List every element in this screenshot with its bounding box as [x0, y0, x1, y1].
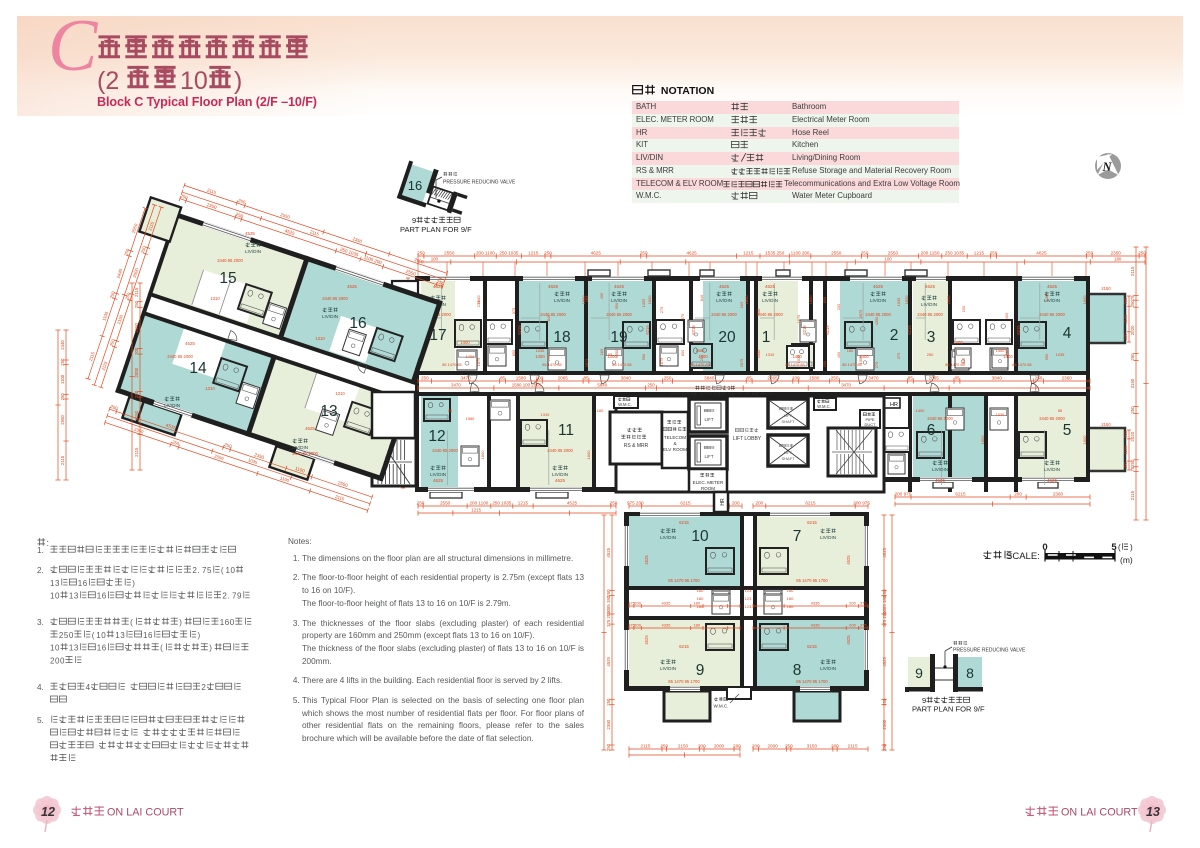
svg-text:3: 3 [927, 329, 936, 346]
svg-text:375: 375 [896, 353, 901, 360]
svg-text:): ) [209, 644, 212, 653]
svg-text:100: 100 [536, 375, 544, 380]
svg-text:3840: 3840 [621, 375, 632, 380]
svg-text:W.M.C.: W.M.C. [618, 402, 632, 407]
svg-text:LIV/DIN: LIV/DIN [716, 298, 732, 303]
svg-text:4525: 4525 [846, 635, 851, 645]
svg-text:2440 85 2000: 2440 85 2000 [322, 296, 348, 301]
svg-text:1310: 1310 [205, 386, 215, 391]
svg-text:8: 8 [793, 662, 802, 679]
svg-text:5.: 5. [37, 716, 44, 725]
svg-text:250: 250 [1130, 353, 1135, 361]
svg-text:250: 250 [882, 743, 887, 751]
svg-text:150: 150 [822, 360, 827, 367]
svg-text:6: 6 [102, 644, 107, 653]
svg-text:4350: 4350 [614, 349, 619, 358]
svg-text:1305: 1305 [858, 356, 863, 365]
svg-text:4625: 4625 [873, 284, 884, 289]
svg-text:6: 6 [927, 422, 936, 439]
svg-text:2115: 2115 [206, 187, 217, 195]
svg-text:4525: 4525 [606, 657, 611, 667]
svg-text:250: 250 [927, 352, 934, 357]
svg-text:4625: 4625 [935, 478, 946, 483]
svg-text:200: 200 [634, 622, 641, 627]
svg-text:2440 85 2000: 2440 85 2000 [1039, 416, 1065, 421]
svg-text:3: 3 [74, 644, 79, 653]
svg-text:123: 123 [745, 596, 752, 601]
svg-text:1035: 1035 [536, 348, 545, 353]
svg-text:0: 0 [55, 592, 60, 601]
svg-text:1215: 1215 [528, 250, 539, 255]
svg-text:2440 85 2000: 2440 85 2000 [1039, 312, 1065, 317]
svg-text:4335: 4335 [811, 622, 821, 627]
svg-text:200 975: 200 975 [853, 500, 870, 505]
svg-text:4525: 4525 [882, 657, 887, 667]
svg-text:2000: 2000 [414, 257, 425, 265]
svg-text:1305: 1305 [1044, 293, 1049, 302]
svg-text:850: 850 [511, 349, 516, 356]
svg-text:250: 250 [610, 500, 618, 505]
svg-text:200: 200 [634, 600, 641, 605]
svg-text:PRESSURE REDUCING VALVE: PRESSURE REDUCING VALVE [953, 648, 1026, 654]
svg-text:2440 85 2000: 2440 85 2000 [927, 416, 953, 421]
svg-text:.: . [227, 592, 229, 601]
svg-text:LIV/DIN: LIV/DIN [1044, 467, 1060, 472]
svg-text:375: 375 [860, 600, 867, 605]
svg-text:RS & MRR: RS & MRR [624, 443, 649, 449]
svg-text:3470: 3470 [460, 375, 471, 380]
svg-text:85: 85 [583, 375, 589, 380]
svg-text:165: 165 [739, 302, 744, 309]
svg-text:100: 100 [1123, 461, 1128, 468]
svg-text:165: 165 [584, 296, 589, 303]
svg-text:375: 375 [680, 314, 685, 321]
svg-text:250 1035: 250 1035 [492, 500, 512, 505]
svg-text:LIV/DIN: LIV/DIN [322, 314, 338, 319]
svg-text:1800: 1800 [647, 295, 652, 305]
svg-text:6215: 6215 [691, 325, 696, 335]
svg-text:200 1100: 200 1100 [469, 500, 488, 505]
svg-text:250: 250 [606, 743, 611, 751]
svg-text:6215: 6215 [955, 491, 966, 496]
svg-text:6215: 6215 [825, 325, 830, 335]
svg-text:2875: 2875 [739, 359, 744, 368]
svg-text:3470: 3470 [868, 375, 879, 380]
svg-text:375: 375 [511, 308, 516, 315]
svg-text:250: 250 [235, 212, 244, 219]
svg-text:1400: 1400 [460, 340, 470, 345]
svg-text:250: 250 [421, 375, 429, 380]
svg-text:4525: 4525 [644, 635, 649, 645]
svg-text:180: 180 [787, 588, 794, 593]
svg-text:4350: 4350 [874, 316, 879, 325]
svg-text:LIV/DIN: LIV/DIN [611, 298, 627, 303]
svg-text:250: 250 [1035, 375, 1043, 380]
svg-text:200: 200 [698, 743, 706, 748]
svg-text:840: 840 [961, 357, 966, 364]
svg-text:1150: 1150 [1123, 314, 1128, 323]
svg-text:4525: 4525 [567, 500, 578, 505]
svg-text:0: 0 [231, 566, 236, 575]
svg-text:400: 400 [1004, 312, 1009, 319]
svg-text:2440 85 2000: 2440 85 2000 [217, 258, 243, 263]
svg-text:5: 5 [207, 566, 212, 575]
svg-text:250: 250 [640, 250, 648, 255]
svg-text:2550: 2550 [134, 323, 139, 333]
svg-text:2115: 2115 [1130, 266, 1135, 276]
svg-text:1580: 1580 [466, 416, 475, 421]
svg-text:200 1150: 200 1150 [921, 250, 940, 255]
svg-text:2875: 2875 [858, 310, 863, 319]
svg-text:85: 85 [448, 408, 452, 413]
svg-text:1035: 1035 [896, 298, 901, 307]
svg-text:180: 180 [847, 348, 854, 353]
svg-text:4625: 4625 [765, 284, 776, 289]
svg-text:250: 250 [882, 698, 887, 706]
svg-text:4625: 4625 [1047, 478, 1058, 483]
svg-text:2020: 2020 [1130, 325, 1135, 335]
svg-text:550: 550 [641, 353, 646, 360]
svg-text:16: 16 [408, 178, 422, 193]
svg-text:100: 100 [792, 375, 800, 380]
svg-text:1400: 1400 [535, 354, 545, 359]
svg-text:85 1470 85: 85 1470 85 [442, 362, 461, 367]
svg-text:1800: 1800 [1082, 435, 1087, 445]
svg-text:123: 123 [745, 588, 752, 593]
svg-text:LIV/DIN: LIV/DIN [932, 467, 948, 472]
svg-text:180: 180 [1114, 256, 1122, 261]
svg-text:85: 85 [1058, 408, 1062, 413]
svg-text:85 1470 85: 85 1470 85 [612, 362, 631, 367]
svg-text:(m): (m) [1120, 555, 1133, 565]
svg-text:1310: 1310 [335, 391, 345, 396]
svg-text:2350: 2350 [352, 236, 363, 244]
svg-text:4625: 4625 [591, 250, 602, 255]
svg-text:6215: 6215 [679, 644, 689, 649]
svg-text:2440 85 2000: 2440 85 2000 [711, 312, 737, 317]
svg-text:250: 250 [861, 250, 869, 255]
svg-text:LIFT: LIFT [784, 413, 793, 418]
svg-text:2440 85 2000: 2440 85 2000 [167, 354, 193, 359]
svg-text:LIV/DIN: LIV/DIN [552, 472, 568, 477]
svg-text:5840: 5840 [597, 382, 607, 387]
svg-text:900: 900 [1123, 297, 1128, 304]
svg-text:1085 180: 1085 180 [882, 595, 887, 614]
svg-text:1400: 1400 [996, 348, 1005, 353]
svg-text:85 1470 85 1700: 85 1470 85 1700 [668, 578, 700, 583]
svg-text:DUCT: DUCT [864, 422, 876, 427]
svg-text:0: 0 [60, 656, 65, 665]
svg-text:165: 165 [1004, 349, 1009, 356]
svg-text:3150: 3150 [1130, 378, 1135, 388]
svg-text:4335: 4335 [662, 622, 672, 627]
svg-text:250: 250 [660, 743, 668, 748]
svg-text:4625: 4625 [1047, 284, 1058, 289]
svg-text:1085 180: 1085 180 [606, 595, 611, 614]
svg-text:6215: 6215 [807, 520, 817, 525]
svg-text:15: 15 [219, 270, 236, 287]
svg-text:200: 200 [699, 354, 704, 361]
svg-text:1800: 1800 [586, 450, 591, 460]
svg-text:250: 250 [417, 500, 425, 505]
svg-text:250: 250 [990, 250, 998, 255]
svg-text:200: 200 [756, 500, 764, 505]
svg-text:200: 200 [546, 354, 551, 361]
svg-text:LIV/DIN: LIV/DIN [292, 445, 308, 450]
svg-text:1800: 1800 [480, 450, 485, 460]
svg-text:18: 18 [553, 329, 570, 346]
svg-text:2115: 2115 [134, 287, 139, 297]
svg-text:250: 250 [831, 375, 839, 380]
svg-text:2115: 2115 [641, 743, 651, 748]
svg-text:180: 180 [693, 622, 700, 627]
svg-text:6: 6 [102, 592, 107, 601]
svg-text:0: 0 [1042, 542, 1047, 553]
svg-text:6215: 6215 [679, 520, 689, 525]
svg-text:200: 200 [752, 743, 760, 748]
svg-text:1305: 1305 [641, 299, 646, 308]
svg-text:(: ( [92, 631, 95, 640]
svg-text:6215: 6215 [805, 500, 816, 505]
svg-text:3: 3 [55, 579, 60, 588]
svg-text:2000: 2000 [767, 743, 778, 748]
svg-text:4525: 4525 [606, 547, 611, 557]
svg-text:4625: 4625 [548, 284, 559, 289]
svg-text:75: 75 [1130, 466, 1135, 471]
svg-text:4: 4 [86, 683, 91, 692]
svg-text::: : [46, 538, 49, 549]
svg-text:4: 4 [1063, 325, 1072, 342]
svg-text:LIV/DIN: LIV/DIN [430, 472, 446, 477]
svg-text:2550: 2550 [337, 480, 349, 488]
svg-text:4.: 4. [37, 683, 44, 692]
svg-text:550: 550 [756, 308, 761, 315]
svg-text:2550: 2550 [444, 250, 455, 255]
svg-text:150: 150 [961, 305, 966, 312]
svg-text:2440: 2440 [60, 340, 65, 350]
svg-text:180: 180 [693, 600, 700, 605]
svg-text:2150: 2150 [116, 314, 124, 325]
svg-text:1400: 1400 [466, 354, 475, 359]
svg-text:2440: 2440 [116, 268, 124, 279]
svg-text:275: 275 [874, 362, 879, 369]
svg-text:LIFT LOBBY: LIFT LOBBY [733, 436, 762, 442]
svg-text:W.M.C.: W.M.C. [817, 404, 831, 409]
svg-text:2440 85 2000: 2440 85 2000 [292, 451, 318, 456]
svg-text:2440 85 2000: 2440 85 2000 [917, 312, 943, 317]
svg-text:2065: 2065 [929, 375, 940, 380]
svg-text:4525: 4525 [846, 555, 851, 565]
svg-text:1215: 1215 [518, 500, 529, 505]
svg-text:2365: 2365 [767, 375, 778, 380]
svg-text:250: 250 [1085, 250, 1093, 255]
svg-text:85 1470 85 1700: 85 1470 85 1700 [796, 679, 828, 684]
svg-text:19: 19 [610, 329, 627, 346]
svg-text:2115: 2115 [134, 447, 139, 457]
svg-text:165: 165 [599, 349, 604, 356]
svg-text:LIV/DIN: LIV/DIN [762, 298, 778, 303]
svg-text:): ) [1130, 543, 1133, 552]
svg-text:2000: 2000 [134, 367, 139, 377]
svg-text:2360: 2360 [1062, 375, 1073, 380]
svg-text:250: 250 [223, 442, 232, 449]
svg-text:1535 250: 1535 250 [765, 250, 785, 255]
svg-text:6: 6 [83, 579, 88, 588]
svg-text:1675: 1675 [659, 358, 664, 367]
svg-text:1400: 1400 [916, 408, 925, 413]
svg-text:2115: 2115 [60, 455, 65, 465]
svg-text:2020: 2020 [1130, 431, 1135, 441]
svg-text:1215: 1215 [743, 250, 754, 255]
svg-text:1035: 1035 [996, 412, 1005, 417]
svg-text:250: 250 [60, 358, 65, 366]
svg-text:100: 100 [431, 256, 439, 261]
svg-text:400: 400 [599, 292, 604, 299]
svg-text:85: 85 [908, 375, 914, 380]
svg-text:9: 9 [696, 662, 705, 679]
svg-text:7: 7 [793, 528, 802, 545]
svg-text:LIV/DIN: LIV/DIN [164, 403, 180, 408]
svg-text:6215: 6215 [907, 325, 912, 335]
svg-text:PRESSURE REDUCING VALVE: PRESSURE REDUCING VALVE [443, 180, 516, 186]
svg-text:4525: 4525 [185, 341, 195, 346]
svg-text:6215: 6215 [807, 644, 817, 649]
svg-text:85 1470 85 1700: 85 1470 85 1700 [796, 578, 828, 583]
svg-text:2360: 2360 [606, 719, 611, 729]
svg-text:8: 8 [966, 665, 974, 681]
svg-text:2360: 2360 [882, 719, 887, 729]
svg-text:85 1470 85: 85 1470 85 [785, 362, 804, 367]
svg-text:&: & [673, 441, 676, 446]
svg-text:250: 250 [606, 589, 611, 597]
svg-text:400: 400 [836, 351, 841, 358]
svg-text:2440 85 2000: 2440 85 2000 [865, 312, 891, 317]
svg-text:ELV ROOM: ELV ROOM [663, 447, 687, 452]
svg-text:4625: 4625 [614, 284, 625, 289]
svg-text:6215: 6215 [802, 325, 807, 335]
svg-text:SHAFT: SHAFT [781, 419, 795, 424]
svg-text:4625: 4625 [433, 478, 444, 483]
svg-text:1100: 1100 [60, 374, 65, 384]
svg-text:375 200: 375 200 [606, 611, 611, 627]
svg-text:550: 550 [614, 302, 619, 309]
svg-text:2550: 2550 [888, 250, 899, 255]
svg-text:2000: 2000 [714, 743, 725, 748]
svg-text:200: 200 [1014, 491, 1022, 496]
svg-text:250: 250 [664, 375, 672, 380]
svg-text:1800: 1800 [744, 295, 749, 305]
svg-text:LIFT: LIFT [704, 417, 713, 422]
svg-text:100: 100 [884, 256, 892, 261]
svg-text:1035: 1035 [796, 355, 801, 364]
svg-text:2150: 2150 [134, 410, 139, 420]
svg-text:2440 85 2000: 2440 85 2000 [432, 448, 458, 453]
svg-text:PART PLAN FOR 9/F: PART PLAN FOR 9/F [912, 705, 985, 714]
svg-text:180: 180 [597, 408, 604, 413]
svg-text:250: 250 [647, 382, 655, 387]
svg-text:): ) [179, 618, 182, 627]
svg-text:1310: 1310 [315, 336, 325, 341]
svg-text:180: 180 [787, 596, 794, 601]
svg-text:4350: 4350 [756, 349, 761, 358]
svg-text:5: 5 [1111, 542, 1117, 553]
svg-text:N: N [1101, 160, 1112, 174]
svg-text:1310: 1310 [766, 352, 775, 357]
svg-text:1675: 1675 [796, 315, 801, 324]
svg-text:1.: 1. [37, 546, 44, 555]
svg-text:.: . [197, 566, 199, 575]
svg-text:100: 100 [1123, 333, 1128, 340]
svg-text:2150: 2150 [1101, 286, 1111, 291]
svg-text:85 1470 85: 85 1470 85 [690, 362, 709, 367]
svg-text:840: 840 [699, 294, 704, 301]
svg-text:180: 180 [697, 588, 704, 593]
svg-text:LIV/DIN: LIV/DIN [820, 535, 836, 540]
svg-text:6215: 6215 [517, 325, 522, 335]
svg-text:2.: 2. [37, 566, 44, 575]
svg-text:850: 850 [680, 349, 685, 356]
svg-text:9: 9 [727, 386, 730, 392]
svg-text:3.: 3. [37, 618, 44, 627]
svg-text:3: 3 [74, 592, 79, 601]
svg-text:11: 11 [558, 422, 574, 439]
svg-text:200: 200 [836, 303, 841, 310]
svg-text:3470: 3470 [451, 382, 461, 387]
svg-text:1035: 1035 [1056, 352, 1065, 357]
svg-text:4525: 4525 [644, 555, 649, 565]
svg-text:6215: 6215 [680, 500, 691, 505]
svg-text:250: 250 [179, 193, 188, 200]
svg-text:9: 9 [237, 592, 242, 601]
svg-text:SHAFT: SHAFT [781, 456, 795, 461]
svg-text:4525: 4525 [305, 426, 315, 431]
svg-text:4625: 4625 [925, 284, 936, 289]
svg-text:2: 2 [201, 683, 206, 692]
svg-text:0: 0 [101, 631, 106, 640]
svg-text:PART PLAN FOR 9/F: PART PLAN FOR 9/F [400, 225, 472, 234]
svg-text:2150: 2150 [678, 743, 689, 748]
svg-text:2875: 2875 [584, 359, 589, 368]
svg-text:200: 200 [134, 347, 139, 355]
svg-text:250: 250 [60, 393, 65, 401]
svg-text:1310: 1310 [541, 412, 550, 417]
svg-text:840: 840 [546, 314, 551, 321]
svg-text:1800: 1800 [808, 295, 813, 305]
svg-text:250: 250 [544, 250, 552, 255]
svg-text:250: 250 [1138, 250, 1146, 255]
svg-text:LIFT: LIFT [704, 454, 713, 459]
svg-text:375: 375 [860, 622, 867, 627]
svg-text:4525: 4525 [347, 284, 357, 289]
svg-text:123: 123 [745, 604, 752, 609]
svg-text:3: 3 [120, 631, 125, 640]
svg-text:20: 20 [718, 329, 736, 346]
svg-text:9: 9 [412, 216, 416, 225]
svg-text:250: 250 [1130, 459, 1135, 467]
svg-text:0: 0 [55, 644, 60, 653]
svg-text:2360: 2360 [1053, 491, 1064, 496]
svg-text:3470: 3470 [841, 382, 851, 387]
svg-text:2440 85 2000: 2440 85 2000 [757, 312, 783, 317]
svg-text:SCALE:: SCALE: [1006, 551, 1040, 562]
svg-text:ROOM: ROOM [701, 486, 715, 491]
svg-text:HR: HR [720, 498, 726, 506]
svg-text:250: 250 [882, 589, 887, 597]
svg-text:2550: 2550 [60, 415, 65, 425]
svg-text:LIV/DIN: LIV/DIN [820, 666, 836, 671]
svg-text:375 200: 375 200 [882, 611, 887, 627]
svg-text:250: 250 [134, 390, 139, 398]
